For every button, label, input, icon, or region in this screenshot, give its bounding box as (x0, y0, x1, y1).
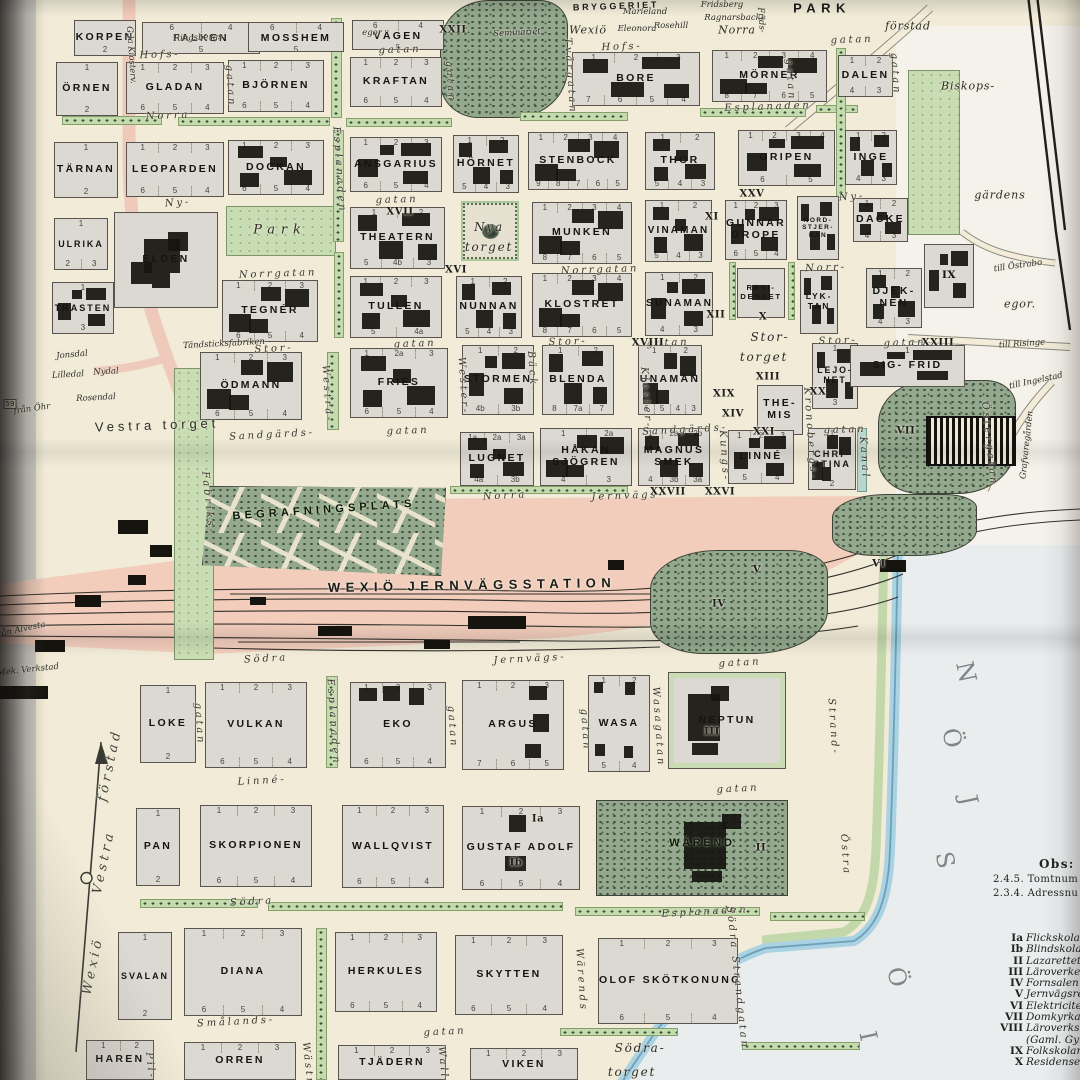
legend-note-1: 2.4.5. Tomtnum (993, 874, 1080, 885)
old-kloster-road (129, 0, 199, 560)
map-photo: WÄREND KORPEN264FALKEN564MOSSHEM564VÄGEN… (0, 0, 1080, 1080)
legend-obs: Obs: (1039, 857, 1080, 871)
shore-esplanade (762, 545, 884, 940)
country-roads (788, 8, 1070, 490)
legend-note-2: 2.3.4. Adressnu (993, 888, 1080, 899)
map-canvas (0, 0, 1080, 1080)
map-legend: Obs: 2.4.5. Tomtnum 2.3.4. Adressnu IaFl… (993, 857, 1080, 1069)
legend-item-residenset: XResidenset (993, 1057, 1080, 1068)
compass-arrow (76, 742, 108, 1052)
nydal-road (94, 358, 168, 371)
railway-north-line (1028, 0, 1070, 330)
legend-items: IaFlickskolanIbBlindskolanIILazarettetII… (993, 933, 1080, 1069)
